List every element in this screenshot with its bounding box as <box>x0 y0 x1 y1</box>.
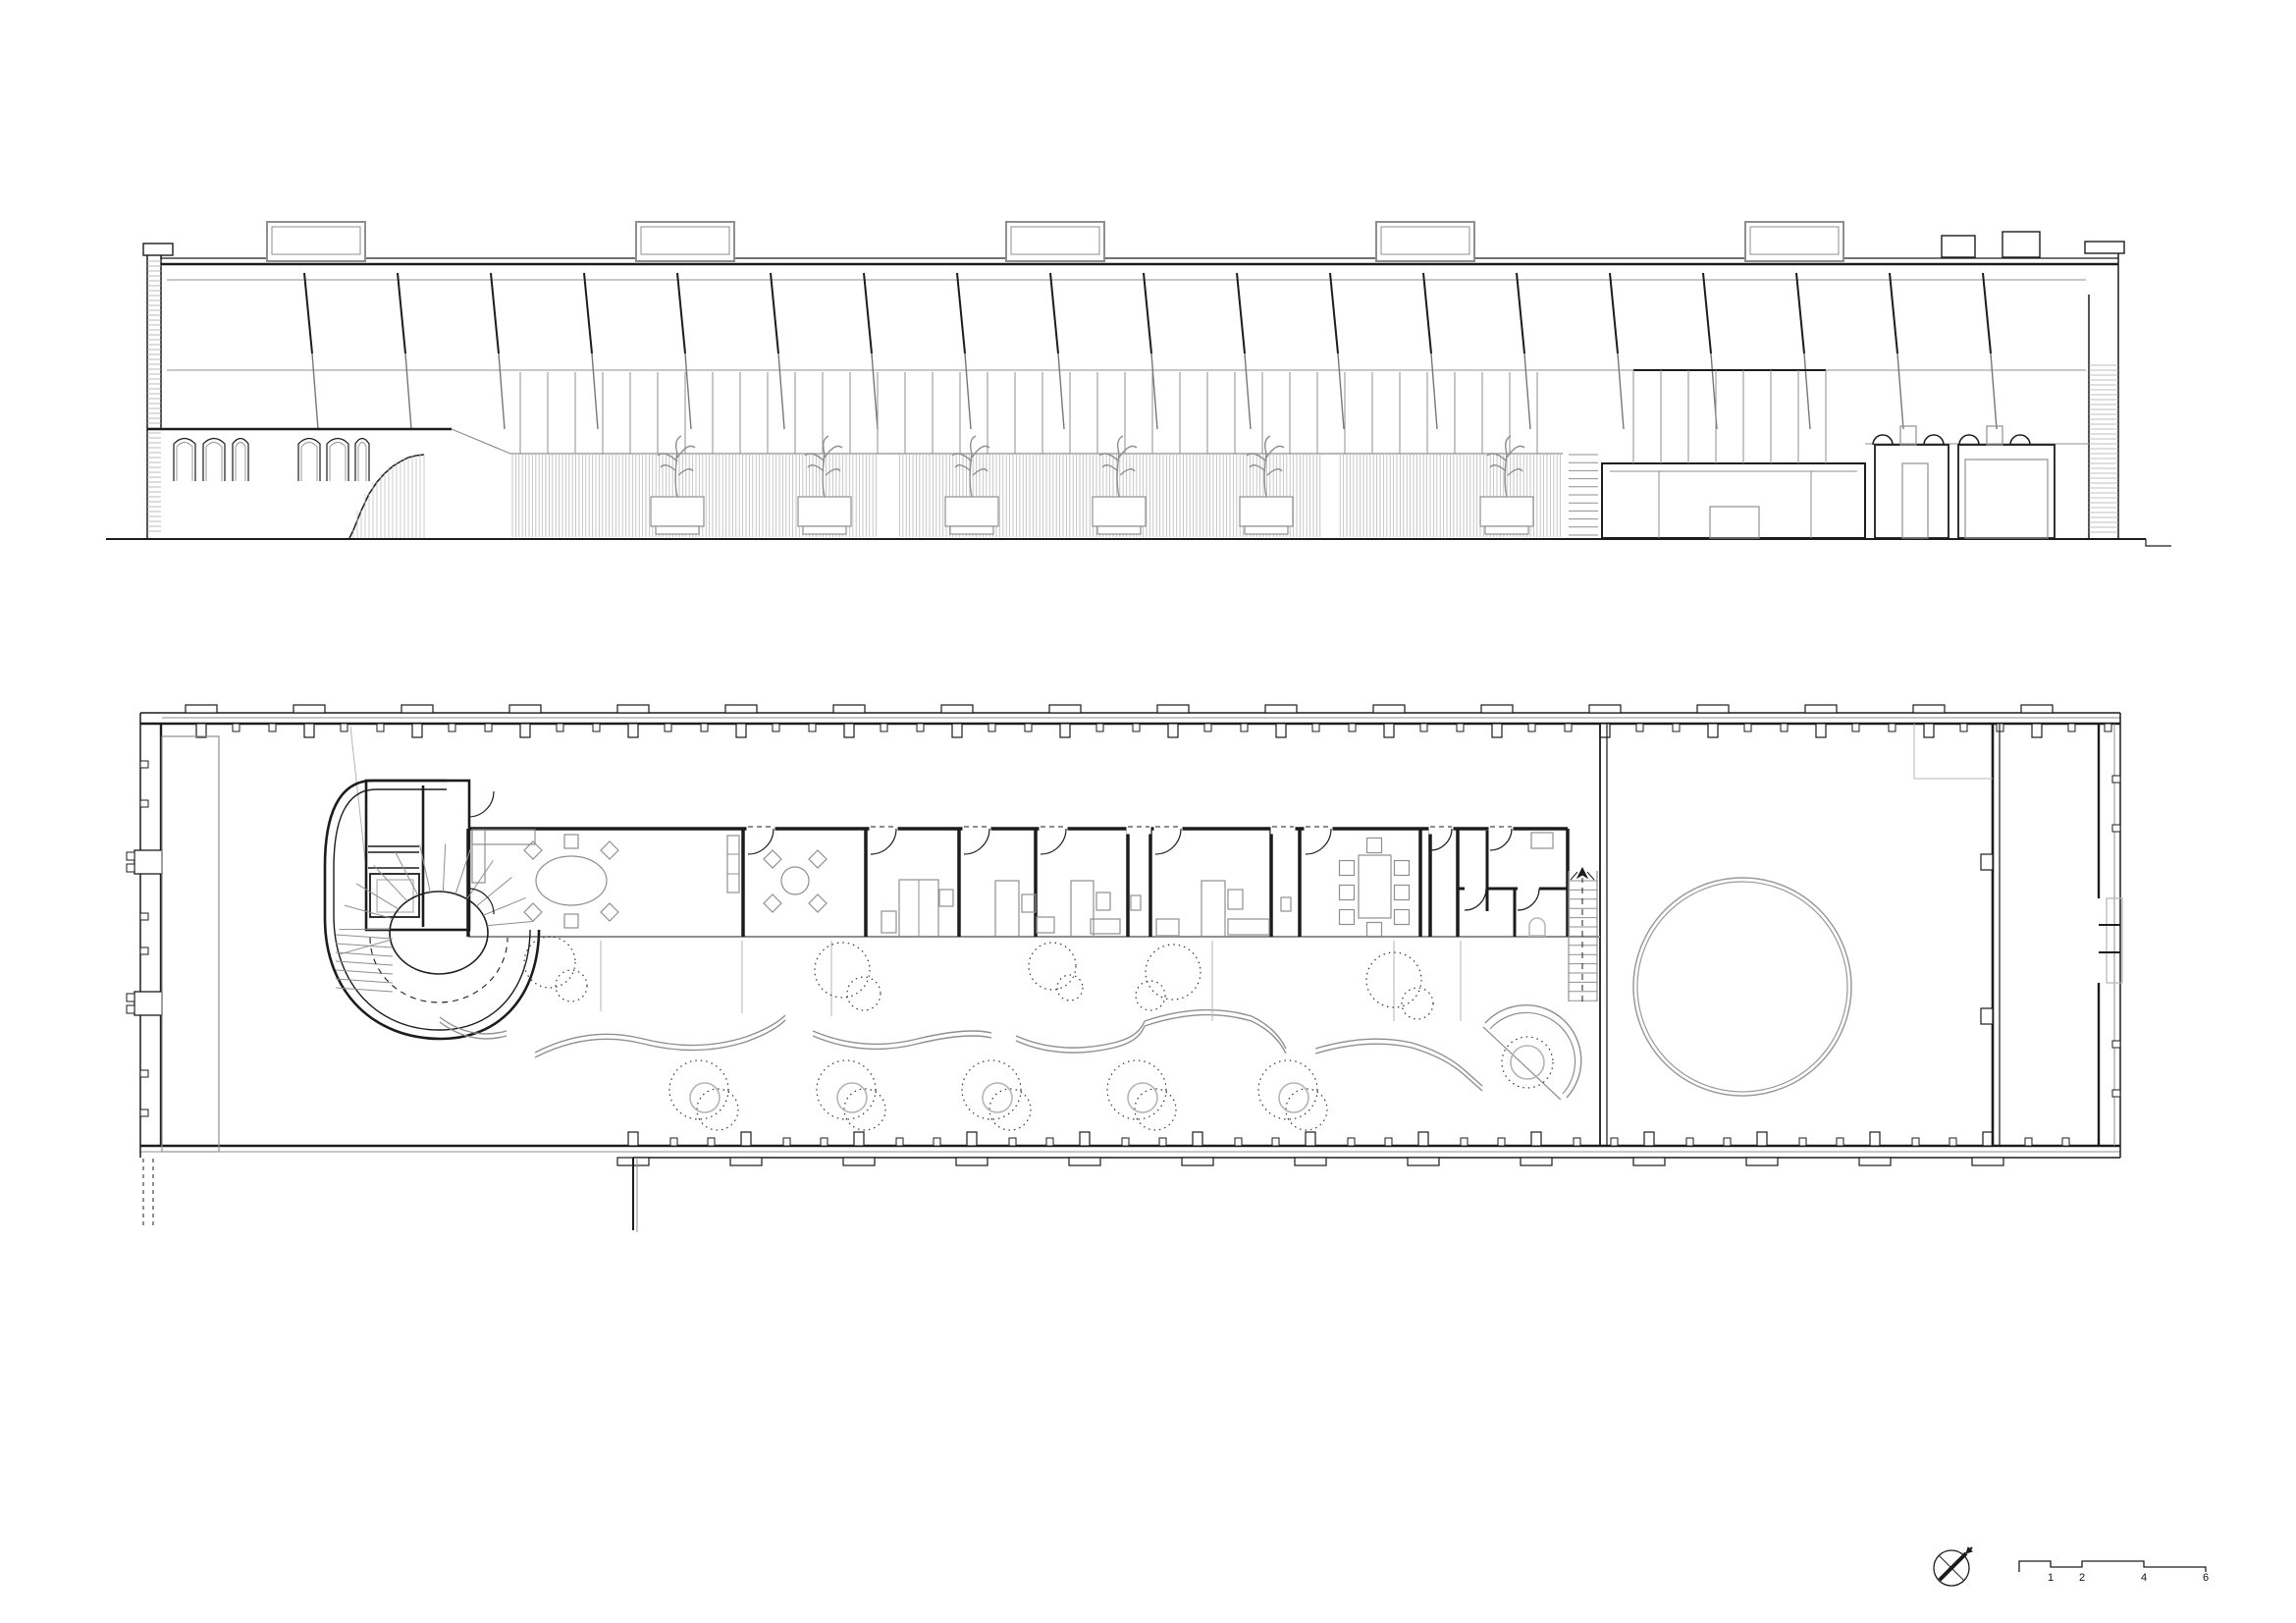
pilaster <box>1408 1132 1505 1165</box>
door <box>1154 823 1182 854</box>
rooms-band <box>468 829 1600 937</box>
door <box>1040 823 1067 854</box>
door <box>1305 823 1332 854</box>
pilaster <box>1157 705 1248 737</box>
pilaster-large <box>127 992 162 1015</box>
section-chairs <box>1873 426 1944 445</box>
skylight-box <box>1006 222 1104 261</box>
roof-strut <box>1983 273 1997 429</box>
section-room <box>1875 445 1949 538</box>
scale-label: 6 <box>2203 1572 2209 1584</box>
tree <box>962 1060 1031 1130</box>
pilaster <box>2112 1090 2120 1097</box>
roof-strut <box>491 273 505 429</box>
opening <box>1271 823 1295 834</box>
semicircle-planter <box>1483 1005 1581 1100</box>
skylight-box <box>636 222 734 261</box>
pilaster <box>2112 825 2120 832</box>
pilaster <box>1295 1132 1392 1165</box>
bush <box>1029 943 1083 1001</box>
pilaster <box>1859 1132 1956 1165</box>
roof-strut <box>677 273 691 429</box>
pilaster <box>1697 705 1788 737</box>
door <box>963 823 990 854</box>
pilaster <box>140 1109 148 1116</box>
roof-plant-box <box>2002 232 2040 257</box>
scale-label: 1 <box>2048 1572 2054 1584</box>
stair-core <box>325 781 539 1039</box>
section-meeting-block <box>1602 370 1865 538</box>
section-stair <box>1569 455 1598 535</box>
skylight-box <box>1745 222 1843 261</box>
garden-bench <box>813 1031 991 1049</box>
pilaster <box>941 705 1032 737</box>
garden-bench <box>1016 1021 1145 1053</box>
section-room <box>1958 445 2055 538</box>
garden-bench <box>1315 1039 1482 1091</box>
pilaster <box>1746 1132 1843 1165</box>
clerestory-mullions <box>520 372 1537 454</box>
rooflight-strip <box>162 736 219 1152</box>
pilaster <box>140 800 148 807</box>
wc-cluster <box>1458 831 1568 937</box>
pilaster <box>1589 705 1680 737</box>
roof-strut <box>1330 273 1344 429</box>
pilaster <box>617 705 708 737</box>
pilaster <box>1633 1132 1731 1165</box>
bush <box>815 943 881 1010</box>
pilaster <box>140 1070 148 1077</box>
pilaster <box>1373 705 1464 737</box>
roof-strut <box>1144 273 1157 429</box>
door <box>870 823 897 854</box>
right-wall-window <box>2099 898 2122 983</box>
skylight-box <box>267 222 365 261</box>
pilaster <box>140 913 148 920</box>
pilaster <box>140 761 148 768</box>
tree <box>1258 1060 1327 1130</box>
pilaster <box>1265 705 1356 737</box>
pilaster <box>1481 705 1572 737</box>
scale-label: 4 <box>2141 1572 2147 1584</box>
mezzanine-left-block <box>147 429 510 481</box>
ground-line <box>106 539 2171 546</box>
door <box>1429 823 1453 850</box>
pilaster <box>509 705 600 737</box>
north-arrow-icon <box>1934 1547 1972 1586</box>
straight-stair <box>1569 868 1597 1001</box>
floor-plan <box>127 705 2122 1232</box>
pilaster <box>140 947 148 954</box>
roof-strut <box>771 273 784 429</box>
potted-plant <box>1093 436 1146 534</box>
inner-right-wall <box>1981 724 2000 1146</box>
scale-label: 2 <box>2079 1572 2085 1584</box>
section-chairs <box>1959 426 2030 445</box>
pilaster <box>730 1132 828 1165</box>
pilaster <box>401 705 492 737</box>
roof-strut <box>584 273 598 429</box>
section-left-wall <box>143 243 173 539</box>
door <box>1489 823 1513 850</box>
opening <box>1127 823 1150 834</box>
pilaster <box>833 705 924 737</box>
pilaster <box>2112 1041 2120 1048</box>
pilaster <box>186 705 276 737</box>
pilaster <box>1972 1132 2069 1165</box>
pilaster <box>1805 705 1896 737</box>
section-right-wall <box>2085 242 2124 539</box>
pilaster <box>1182 1132 1279 1165</box>
roof-strut <box>1517 273 1530 429</box>
bush <box>1366 952 1433 1019</box>
pilaster <box>617 1132 715 1165</box>
pilaster <box>956 1132 1053 1165</box>
pilaster <box>2112 776 2120 783</box>
pilaster <box>725 705 816 737</box>
architectural-drawing: 1 2 4 6 <box>0 0 2296 1623</box>
courtyard-circle <box>1633 878 1851 1096</box>
tree <box>817 1060 885 1130</box>
pilaster <box>294 705 384 737</box>
garden-bench <box>1145 1010 1286 1054</box>
section-drawing <box>106 222 2171 546</box>
skylight-box <box>1376 222 1474 261</box>
tree <box>669 1060 738 1130</box>
roof-strut <box>957 273 971 429</box>
pilaster-large <box>127 850 162 874</box>
roof-strut <box>1610 273 1624 429</box>
pilaster <box>1521 1132 1618 1165</box>
garden-bench <box>440 1017 507 1039</box>
roof-strut <box>1890 273 1903 429</box>
pilaster <box>1069 1132 1166 1165</box>
roof-plant-box <box>1942 236 1975 257</box>
roof-strut <box>864 273 878 429</box>
bush <box>1136 945 1201 1010</box>
pilaster <box>1049 705 1140 737</box>
garden-bench <box>535 1015 785 1057</box>
roof-strut <box>1703 273 1717 429</box>
pilaster <box>1913 705 2003 737</box>
roof-strut <box>304 273 318 429</box>
roof-strut <box>1050 273 1064 429</box>
roof-strut <box>1237 273 1251 429</box>
door <box>747 823 774 854</box>
pilaster <box>843 1132 940 1165</box>
scale-bar: 1 2 4 6 <box>2019 1561 2209 1584</box>
corner-details <box>143 1158 637 1232</box>
stair-drum-curve <box>349 455 424 538</box>
divider-wall <box>1600 724 1607 1146</box>
furniture <box>472 830 1553 938</box>
roof-strut <box>398 273 411 429</box>
drawing-sheet: 1 2 4 6 <box>0 0 2296 1623</box>
roof-strut <box>1423 273 1437 429</box>
scale-bar-line <box>2019 1561 2206 1572</box>
tree <box>1107 1060 1176 1130</box>
